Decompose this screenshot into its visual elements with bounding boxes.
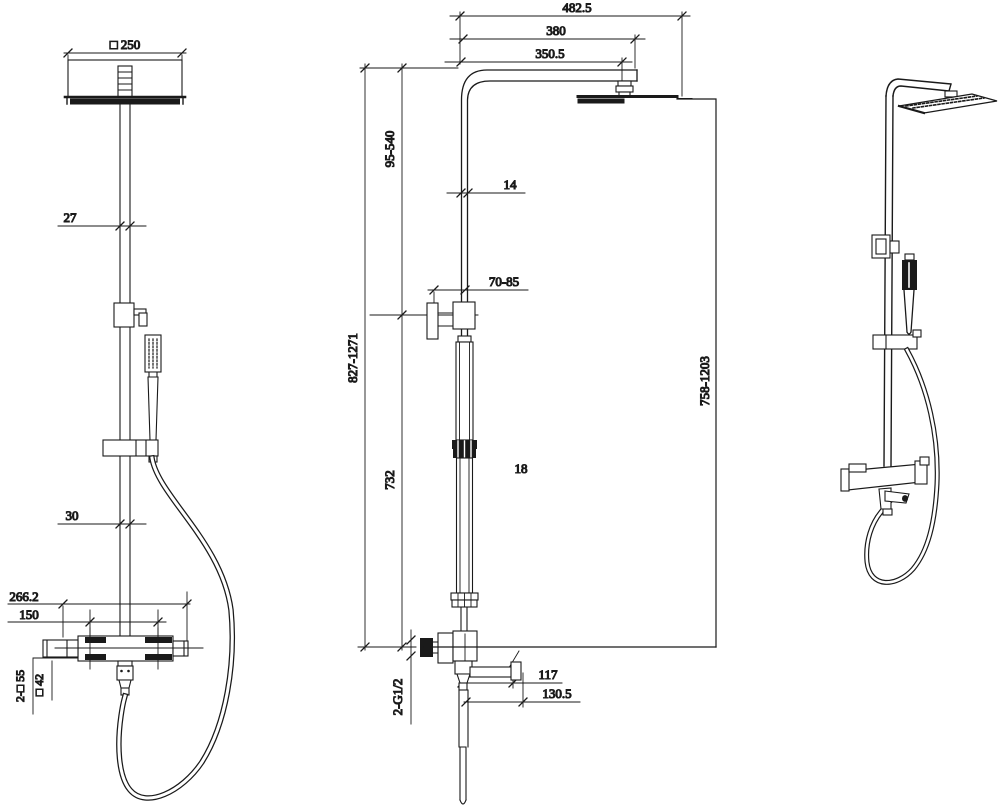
dim-side-overall-reach: 482.5 — [562, 0, 591, 15]
dim-side-inlet-threads: 2-G1/2 — [390, 679, 405, 716]
persp-wall-bracket — [872, 235, 899, 258]
persp-riser — [884, 96, 893, 466]
dim-side-bracket-standoff: 70-85 — [489, 274, 519, 289]
dim-side-arm-span: 380 — [546, 23, 566, 38]
front-left-handle — [43, 640, 78, 657]
dim-side-head-to-outlet: 758-1203 — [697, 356, 712, 406]
dim-front-lower-pipe: 30 — [66, 508, 79, 523]
dim-front-valve-width: 266.2 — [9, 589, 38, 604]
side-telescopic-tube — [451, 336, 478, 632]
side-dimension-lines — [358, 12, 690, 724]
side-hand-shower-below — [459, 690, 468, 804]
persp-arm — [886, 79, 951, 96]
persp-slider-bar — [873, 330, 921, 349]
dim-front-handle-centers: 150 — [19, 607, 39, 622]
front-hand-shower — [103, 335, 161, 462]
side-riser-and-arm — [462, 70, 638, 342]
dim-side-tube-dia: 18 — [515, 461, 528, 476]
front-slider-holder — [103, 440, 158, 456]
front-diverter — [117, 666, 133, 680]
dim-side-spout-overall: 130.5 — [542, 686, 571, 701]
dim-front-diverter-square: □ 42 — [32, 674, 46, 696]
side-dimension-ticks — [361, 12, 686, 706]
front-rain-head — [65, 60, 185, 104]
front-right-stub — [173, 641, 188, 656]
side-view: 482.5 380 350.5 95-540 14 70-85 827-1271… — [345, 0, 716, 804]
front-riser-pipe — [120, 104, 130, 637]
dim-side-lower-riser: 732 — [382, 470, 397, 490]
persp-faucet — [841, 457, 929, 515]
dim-side-arm-reach: 350.5 — [535, 46, 564, 61]
front-hose — [119, 458, 232, 798]
front-dimension-ticks — [59, 49, 191, 626]
dim-front-head-size: □ 250 — [110, 37, 141, 52]
side-faucet — [420, 631, 521, 690]
dim-side-top-to-bracket: 95-540 — [382, 131, 397, 168]
dim-front-upper-pipe: 27 — [64, 210, 78, 225]
perspective-view — [841, 79, 997, 582]
front-slider-diverter — [114, 303, 147, 327]
front-view: □ 250 27 30 266.2 150 2-□ 55 □ 42 — [8, 37, 232, 798]
side-spout — [470, 667, 513, 677]
dim-front-wall-squares: 2-□ 55 — [13, 670, 27, 702]
front-faucet — [43, 628, 203, 695]
persp-hand-shower — [902, 254, 917, 334]
dim-side-overall-height: 827-1271 — [345, 333, 360, 383]
shower-system-drawing: □ 250 27 30 266.2 150 2-□ 55 □ 42 — [0, 0, 1000, 812]
technical-drawing: □ 250 27 30 266.2 150 2-□ 55 □ 42 — [0, 0, 1000, 812]
dim-side-spout-reach: 117 — [538, 667, 558, 682]
side-head — [578, 81, 692, 101]
dim-side-riser-dia: 14 — [504, 177, 518, 192]
